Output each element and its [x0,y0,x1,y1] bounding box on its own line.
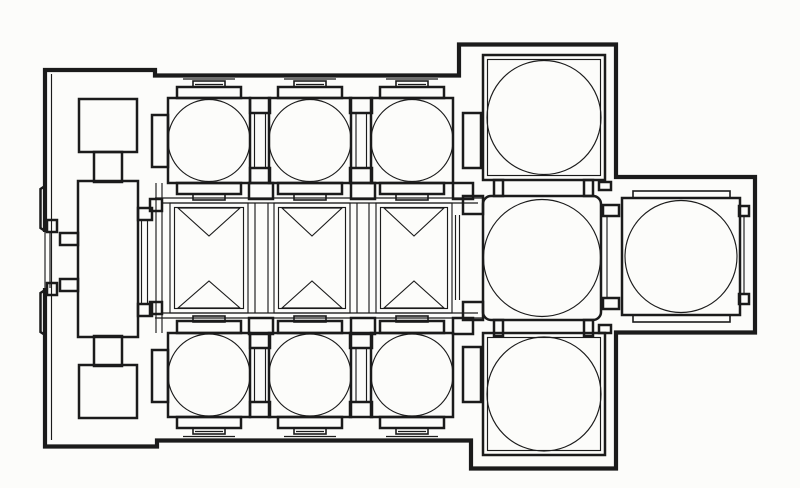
nave-arcade-pier [249,183,273,199]
nave-vault-triangle [282,281,342,308]
bema-door-jamb [603,298,619,309]
nave-bay-inner-frame [381,208,448,309]
bay-crown-step [278,183,342,194]
nave-vault-triangle [384,281,444,308]
northeast-chamber-dome [487,61,601,175]
nave-arcade-pier [249,318,273,334]
nave-vault-triangle [178,208,240,236]
nave-bay-frame [170,203,248,313]
bay-crown-step [380,87,444,98]
north-aisle-bay-stub [350,98,372,113]
north-aisle-west-pier [152,115,168,167]
bay-crown-step [177,417,241,428]
bay-crown-step [278,417,342,428]
chamber-inner-line [488,338,601,451]
crossing-square [483,196,601,320]
bay-crown-step [278,87,342,98]
south-aisle-dome [168,334,250,416]
north-aisle-bay-stub [250,168,270,183]
crossing-east-stub [599,182,611,190]
narthex-south-pier [79,365,137,418]
nave-bay-inner-frame [279,208,346,309]
north-aisle-bay-stub [350,168,372,183]
bay-crown-step [177,87,241,98]
drawing-canvas [0,0,800,488]
southeast-chamber-square [483,333,605,455]
bay-crown-step [177,183,241,194]
bay-crown-step [380,417,444,428]
nave-arcade-pier [351,183,375,199]
narthex-central-room [78,181,138,337]
narthex-south-stem [94,336,122,366]
floor-plan-svg [0,0,800,488]
bema-dome [625,201,737,313]
north-aisle-east-pier [463,113,481,168]
southeast-chamber-dome [487,337,601,451]
south-aisle-dome [371,334,453,416]
north-aisle-bay-stub [250,98,270,113]
bema-square [622,198,740,315]
crossing-dome [484,200,601,317]
nave-vault-triangle [282,208,342,236]
north-aisle-dome [168,100,250,182]
nave-vault-triangle [384,208,444,236]
nave-arcade-pier [351,318,375,334]
south-aisle-bay-stub [250,402,270,417]
south-aisle-bay-stub [350,402,372,417]
bay-crown-step [380,183,444,194]
narthex-north-pier [79,99,137,152]
outer-wall-outline [45,45,755,469]
narthex-north-stem [94,152,122,182]
nave-bay-frame [274,203,350,313]
nave-vault-triangle [178,281,240,308]
narthex-vestibule-stub [60,279,78,291]
south-aisle-east-pier [463,347,481,402]
north-aisle-dome [269,100,351,182]
crossing-north-jamb [494,180,503,196]
nave-bay-frame [376,203,452,313]
narthex-vestibule-stub [60,233,78,245]
south-aisle-west-pier [152,350,168,402]
bema-door-jamb [603,205,619,216]
north-aisle-dome [371,100,453,182]
south-aisle-dome [269,334,351,416]
nave-bay-inner-frame [175,208,244,309]
crossing-north-jamb [584,180,593,196]
northeast-chamber-square [483,55,605,180]
